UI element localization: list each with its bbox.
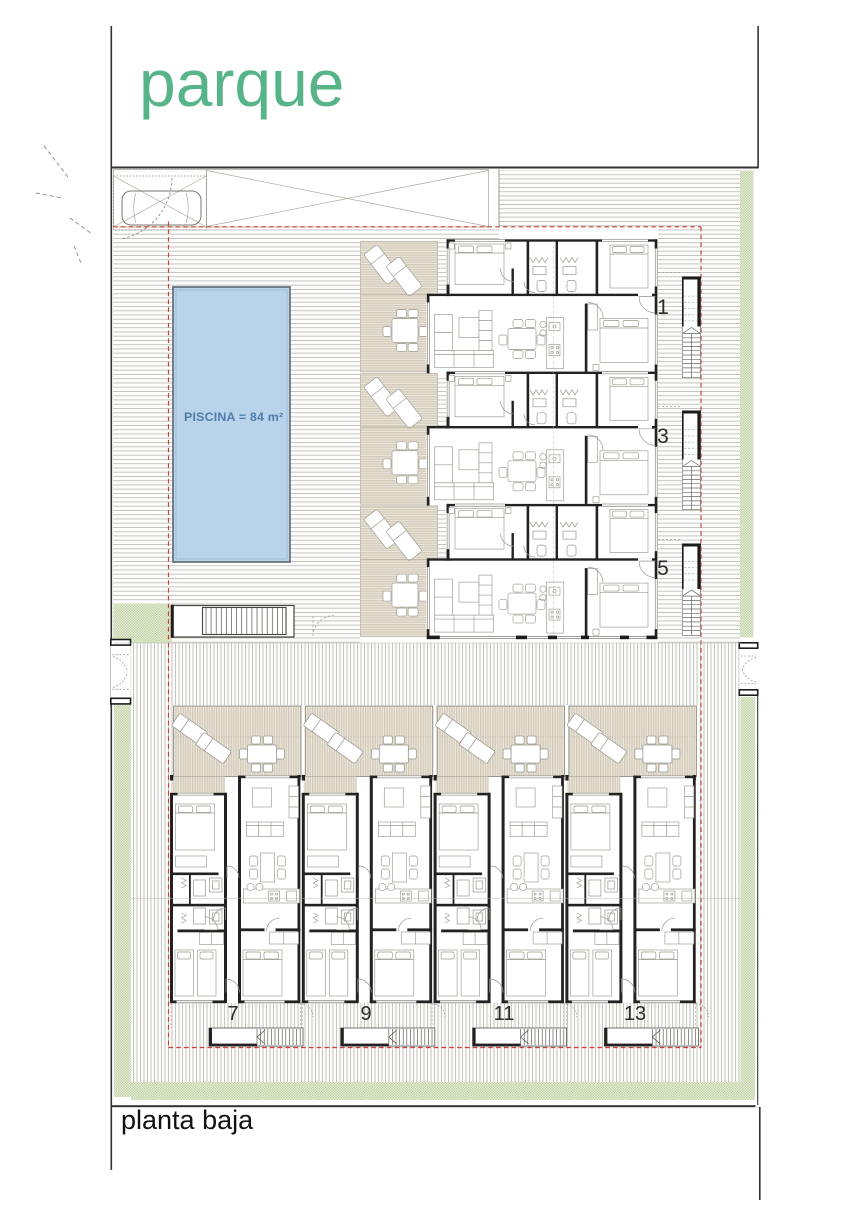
svg-text:parque: parque bbox=[139, 46, 345, 120]
svg-text:PISCINA = 84 m²: PISCINA = 84 m² bbox=[184, 410, 283, 424]
svg-text:5: 5 bbox=[657, 557, 669, 580]
svg-text:7: 7 bbox=[227, 1003, 238, 1025]
svg-text:13: 13 bbox=[624, 1003, 646, 1025]
svg-text:9: 9 bbox=[360, 1003, 371, 1025]
svg-text:3: 3 bbox=[657, 425, 669, 448]
svg-text:1: 1 bbox=[657, 296, 669, 319]
svg-text:planta baja: planta baja bbox=[121, 1105, 254, 1135]
svg-text:11: 11 bbox=[494, 1003, 515, 1025]
